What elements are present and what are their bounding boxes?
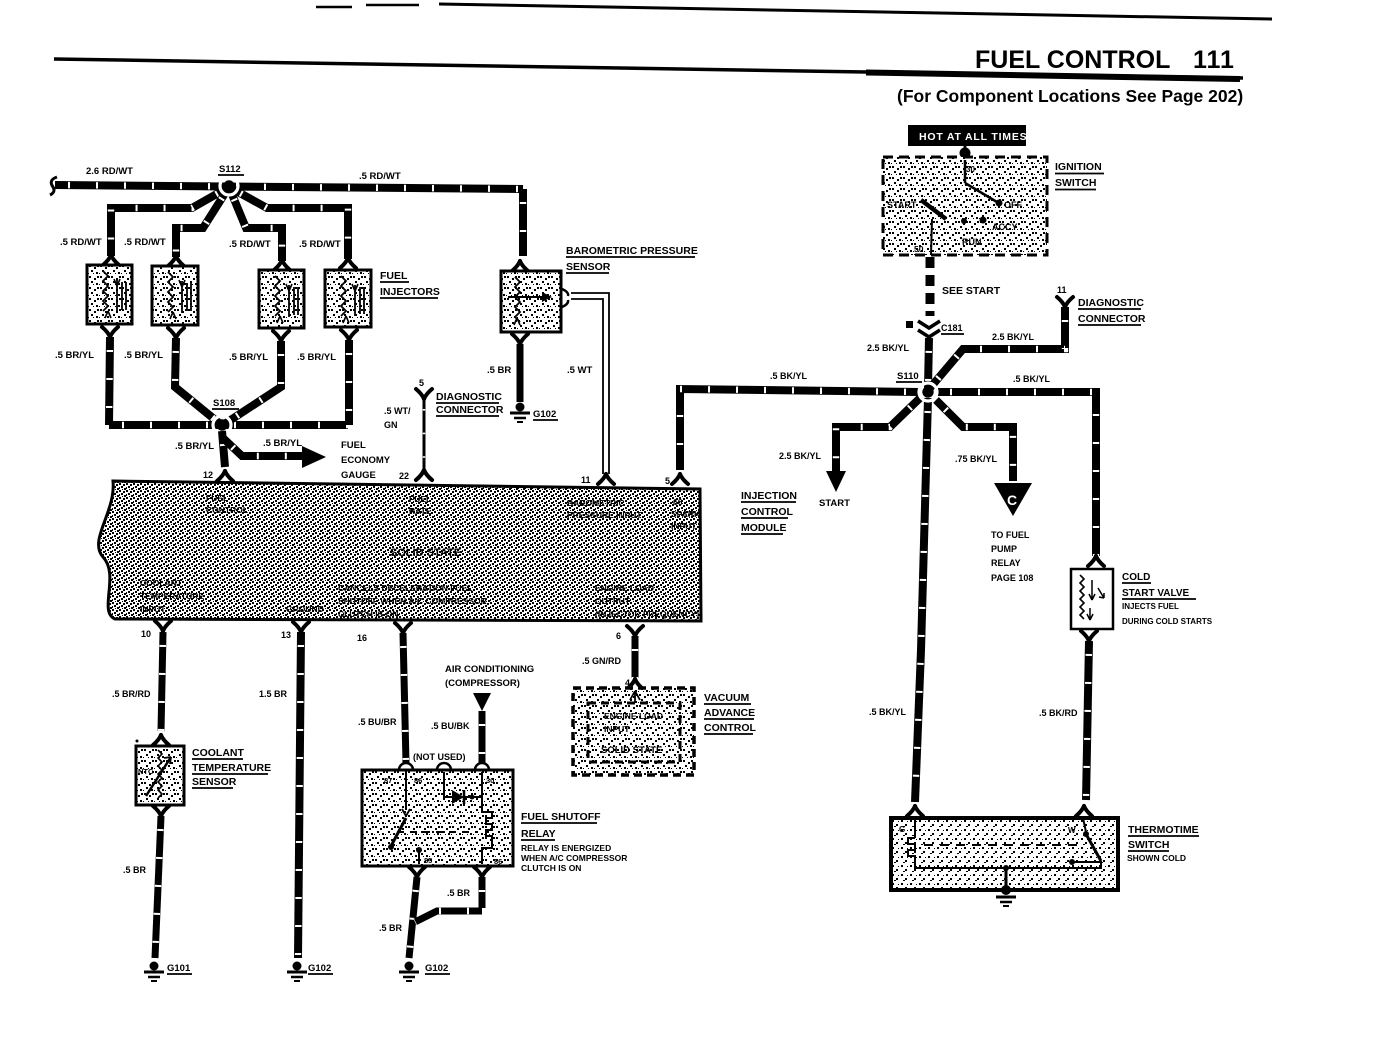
svg-text:.5 BR/RD: .5 BR/RD	[112, 689, 151, 699]
svg-text:ADVANCE: ADVANCE	[704, 707, 755, 719]
svg-text:ACCY: ACCY	[992, 222, 1018, 232]
svg-text:(For Component Locations See P: (For Component Locations See Page 202)	[897, 86, 1243, 106]
svg-text:5: 5	[665, 476, 670, 486]
svg-text:.75 BK/YL: .75 BK/YL	[955, 454, 998, 464]
svg-text:22: 22	[399, 471, 409, 481]
svg-text:THERMOTIME: THERMOTIME	[1128, 824, 1199, 836]
svg-text:INJECTORS: INJECTORS	[380, 286, 440, 298]
svg-text:INPUT: INPUT	[140, 604, 166, 614]
svg-text:FUEL SHUTOFF: FUEL SHUTOFF	[521, 811, 601, 823]
svg-text:SWITCH: SWITCH	[1055, 177, 1096, 189]
svg-text:(NOT USED): (NOT USED)	[413, 752, 466, 762]
svg-text:50: 50	[914, 244, 924, 254]
svg-text:SWITCH: SWITCH	[1128, 839, 1169, 851]
svg-text:16: 16	[357, 633, 367, 643]
svg-text:TEMPERATURE: TEMPERATURE	[192, 762, 271, 774]
svg-text:2.5 BK/YL: 2.5 BK/YL	[867, 343, 910, 353]
svg-text:.5 BR/YL: .5 BR/YL	[175, 441, 214, 452]
svg-text:DIAGNOSTIC: DIAGNOSTIC	[1078, 297, 1144, 309]
svg-text:85: 85	[424, 856, 432, 865]
svg-text:AIR CONDITIONING: AIR CONDITIONING	[445, 664, 534, 675]
svg-text:PUMP: PUMP	[991, 544, 1017, 554]
svg-text:111: 111	[1193, 46, 1235, 74]
svg-text:86: 86	[414, 776, 422, 785]
svg-text:INJECTS FUEL: INJECTS FUEL	[1122, 602, 1179, 611]
svg-text:.5 BR: .5 BR	[379, 923, 403, 933]
svg-text:.5 GN/RD: .5 GN/RD	[582, 656, 622, 666]
svg-text:2.6 RD/WT: 2.6 RD/WT	[86, 166, 133, 177]
svg-text:10: 10	[141, 629, 151, 639]
svg-text:RELAY: RELAY	[991, 558, 1021, 568]
svg-text:RELAY IS ENERGIZED: RELAY IS ENERGIZED	[521, 843, 611, 853]
svg-text:G102: G102	[533, 409, 556, 420]
svg-text:START: START	[819, 498, 850, 509]
svg-text:.5 BR/YL: .5 BR/YL	[124, 350, 163, 361]
svg-text:.5 RD/WT: .5 RD/WT	[359, 171, 401, 182]
svg-text:.5 BR/YL: .5 BR/YL	[55, 350, 94, 361]
svg-text:CONTROL: CONTROL	[206, 505, 248, 515]
svg-text:G102: G102	[425, 963, 448, 974]
svg-text:SOLID STATE: SOLID STATE	[390, 547, 461, 559]
svg-text:PAGE 108: PAGE 108	[991, 573, 1033, 583]
svg-text:FUEL: FUEL	[409, 494, 431, 504]
svg-text:GROUND: GROUND	[286, 604, 324, 614]
svg-text:RELAY: RELAY	[521, 828, 556, 840]
svg-text:13: 13	[281, 630, 291, 640]
svg-text:2.5 BK/YL: 2.5 BK/YL	[992, 332, 1035, 342]
svg-text:START: START	[887, 200, 917, 210]
svg-text:RUN: RUN	[962, 237, 982, 247]
svg-text:DIAGNOSTIC: DIAGNOSTIC	[436, 391, 502, 403]
svg-text:11: 11	[581, 475, 591, 485]
svg-text:30: 30	[966, 165, 975, 174]
svg-text:5: 5	[419, 378, 424, 388]
svg-text:.5 BK/YL: .5 BK/YL	[770, 371, 808, 381]
svg-text:COOLANT: COOLANT	[192, 747, 244, 759]
svg-text:FUEL: FUEL	[380, 270, 408, 282]
svg-text:OFF: OFF	[1004, 200, 1022, 210]
svg-text:2.5 BK/YL: 2.5 BK/YL	[779, 451, 822, 461]
svg-text:1.5 BR: 1.5 BR	[259, 689, 288, 699]
svg-text:FUEL CONTROL: FUEL CONTROL	[975, 46, 1170, 74]
svg-text:.5 RD/WT: .5 RD/WT	[299, 239, 341, 250]
svg-text:WHEN A/C COMPRESSOR: WHEN A/C COMPRESSOR	[521, 853, 627, 863]
svg-text:SHOWN COLD: SHOWN COLD	[1127, 853, 1186, 863]
svg-text:INPUT: INPUT	[604, 724, 630, 734]
svg-text:87: 87	[384, 776, 392, 785]
svg-text:INJECTION: INJECTION	[741, 490, 797, 502]
svg-text:.5 BR: .5 BR	[487, 365, 511, 376]
svg-text:11: 11	[1057, 285, 1067, 295]
svg-text:(INJECTOR FREQUENCY): (INJECTOR FREQUENCY)	[595, 609, 699, 619]
svg-text:SENSOR: SENSOR	[192, 776, 237, 788]
svg-text:CONNECTOR: CONNECTOR	[436, 404, 504, 416]
svg-text:GAUGE: GAUGE	[341, 470, 376, 481]
svg-text:START VALVE: START VALVE	[1122, 588, 1190, 599]
svg-text:86: 86	[494, 857, 502, 866]
svg-text:FUEL: FUEL	[206, 493, 228, 503]
svg-text:.5 BK/YL: .5 BK/YL	[1013, 374, 1051, 384]
svg-text:.5 BR: .5 BR	[447, 888, 471, 898]
svg-text:SPARK: SPARK	[671, 509, 701, 519]
svg-text:12: 12	[203, 470, 213, 480]
svg-text:G101: G101	[167, 963, 191, 974]
svg-text:S110: S110	[897, 371, 919, 382]
svg-text:W: W	[1068, 826, 1076, 835]
svg-text:CANCELS DECELERATION FUEL: CANCELS DECELERATION FUEL	[338, 583, 472, 593]
svg-text:CONTROL: CONTROL	[741, 506, 793, 518]
svg-text:.5 WT: .5 WT	[567, 365, 593, 376]
svg-text:.5 BU/BR: .5 BU/BR	[358, 717, 397, 727]
svg-text:(COMPRESSOR): (COMPRESSOR)	[445, 678, 520, 689]
svg-text:S112: S112	[219, 164, 241, 175]
svg-text:CLUTCH IS ON: CLUTCH IS ON	[338, 609, 398, 619]
svg-text:.5 RD/WT: .5 RD/WT	[229, 239, 271, 250]
svg-text:HOT AT ALL TIMES: HOT AT ALL TIMES	[919, 131, 1027, 143]
svg-text:CONNECTOR: CONNECTOR	[1078, 313, 1146, 325]
svg-text:.5 BU/BK: .5 BU/BK	[431, 721, 470, 731]
svg-text:.5 WT/: .5 WT/	[384, 406, 411, 416]
svg-text:.5 BK/YL: .5 BK/YL	[869, 707, 907, 717]
svg-text:SOLID STATE: SOLID STATE	[601, 745, 662, 756]
svg-text:.5 BR/YL: .5 BR/YL	[229, 352, 268, 363]
svg-text:DURING COLD STARTS: DURING COLD STARTS	[1122, 617, 1213, 626]
svg-text:SHUTOFF WHEN A/C COMPRESSOR: SHUTOFF WHEN A/C COMPRESSOR	[338, 596, 487, 606]
svg-text:BAROMETRIC PRESSURE: BAROMETRIC PRESSURE	[566, 245, 698, 257]
svg-text:CONTROL: CONTROL	[704, 722, 756, 734]
svg-text:.5 RD/WT: .5 RD/WT	[124, 237, 166, 248]
svg-text:SEE START: SEE START	[942, 285, 1001, 297]
svg-text:CLUTCH IS ON: CLUTCH IS ON	[521, 863, 581, 873]
svg-text:INPUT: INPUT	[671, 521, 697, 531]
svg-text:30: 30	[486, 776, 494, 785]
svg-text:6: 6	[616, 631, 621, 641]
svg-text:BAROMETRIC: BAROMETRIC	[567, 498, 625, 508]
svg-text:SENSOR: SENSOR	[566, 261, 611, 273]
svg-text:66: 66	[673, 497, 683, 507]
svg-text:ENGINE LOAD: ENGINE LOAD	[595, 583, 654, 593]
svg-text:G: G	[899, 825, 905, 834]
svg-text:IGNITION: IGNITION	[1055, 161, 1102, 173]
svg-text:.5 BR: .5 BR	[123, 865, 147, 875]
svg-text:ECONOMY: ECONOMY	[341, 455, 391, 466]
svg-text:VACUUM: VACUUM	[704, 692, 750, 704]
svg-text:.5 BR/YL: .5 BR/YL	[297, 352, 336, 363]
svg-text:OUTPUT: OUTPUT	[595, 596, 631, 606]
svg-text:COLD: COLD	[1122, 572, 1150, 583]
svg-text:GN: GN	[384, 420, 398, 430]
svg-text:ENGINE LOAD: ENGINE LOAD	[604, 711, 663, 721]
svg-text:MODULE: MODULE	[741, 522, 787, 534]
svg-text:FUEL: FUEL	[341, 440, 366, 451]
svg-text:TEMPERATURE: TEMPERATURE	[140, 591, 204, 601]
svg-text:.5 BR/YL: .5 BR/YL	[263, 438, 302, 449]
svg-text:.5 RD/WT: .5 RD/WT	[60, 237, 102, 248]
svg-text:.5 BK/RD: .5 BK/RD	[1039, 708, 1078, 718]
svg-text:S108: S108	[213, 398, 235, 409]
svg-text:NTC: NTC	[138, 767, 154, 776]
svg-text:C: C	[1007, 492, 1017, 508]
svg-text:PRESSURE INPUT: PRESSURE INPUT	[567, 510, 642, 520]
svg-text:TO FUEL: TO FUEL	[991, 530, 1030, 540]
svg-text:RATE: RATE	[409, 506, 432, 516]
svg-text:COOLANT: COOLANT	[140, 578, 183, 588]
svg-text:G102: G102	[308, 963, 331, 974]
svg-text:C181: C181	[941, 323, 963, 333]
